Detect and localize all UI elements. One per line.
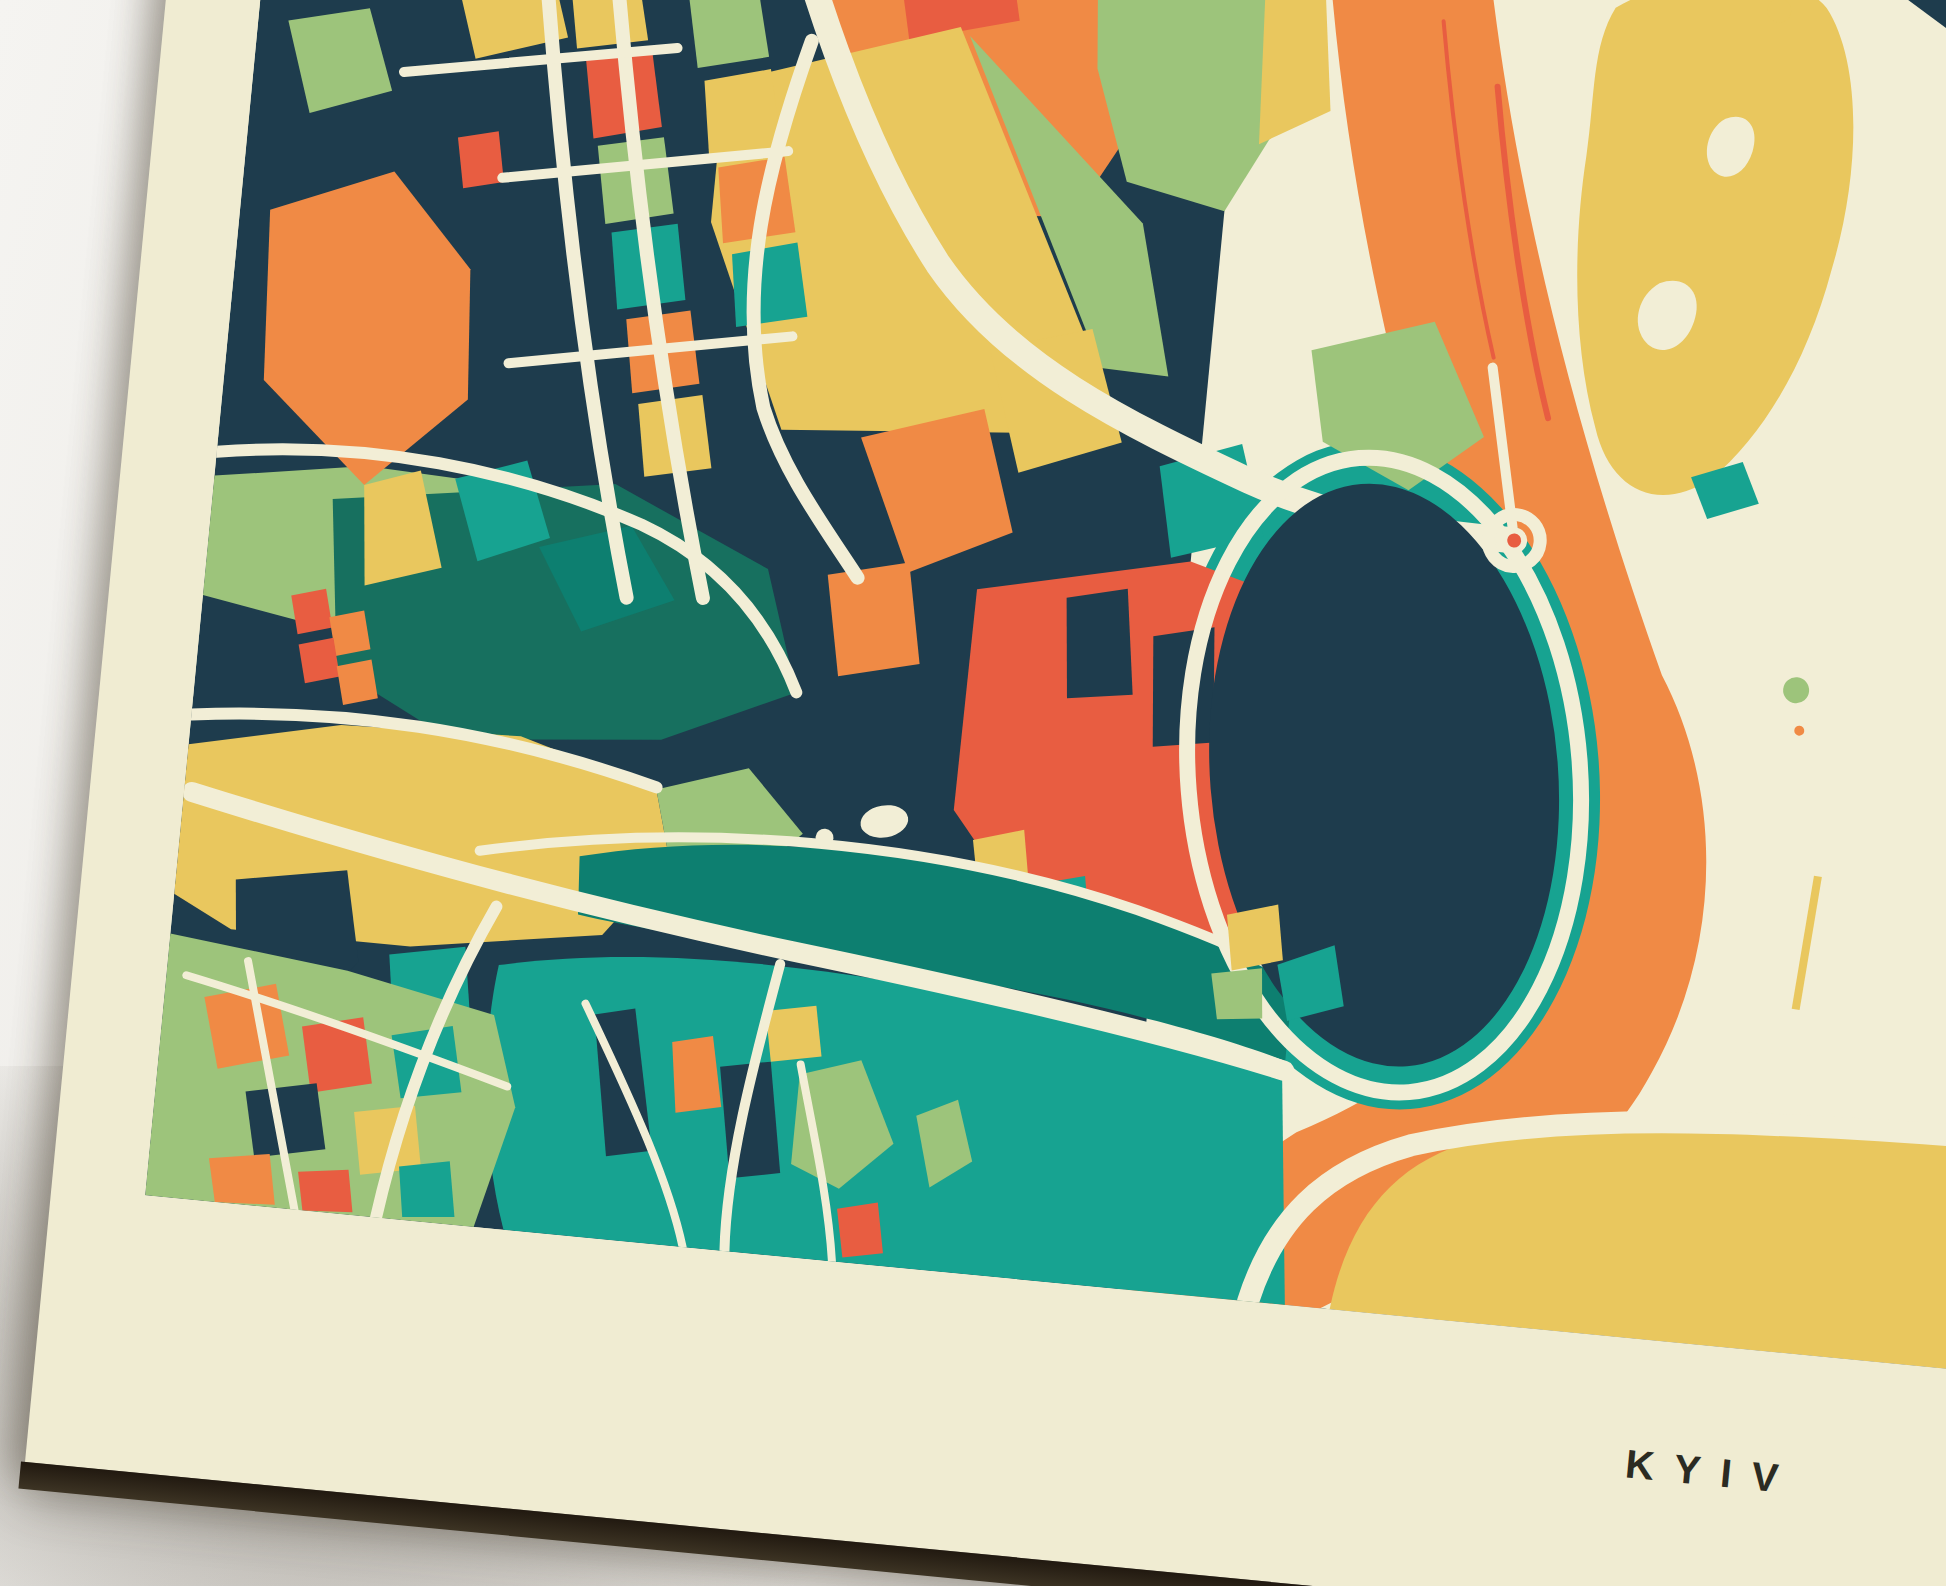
art-print-paper: KYIV (25, 0, 1946, 1586)
photo-scene: KYIV (0, 0, 1946, 1586)
city-title: KYIV (1530, 1433, 1873, 1510)
kyiv-street-map-graphic (145, 0, 1946, 1379)
